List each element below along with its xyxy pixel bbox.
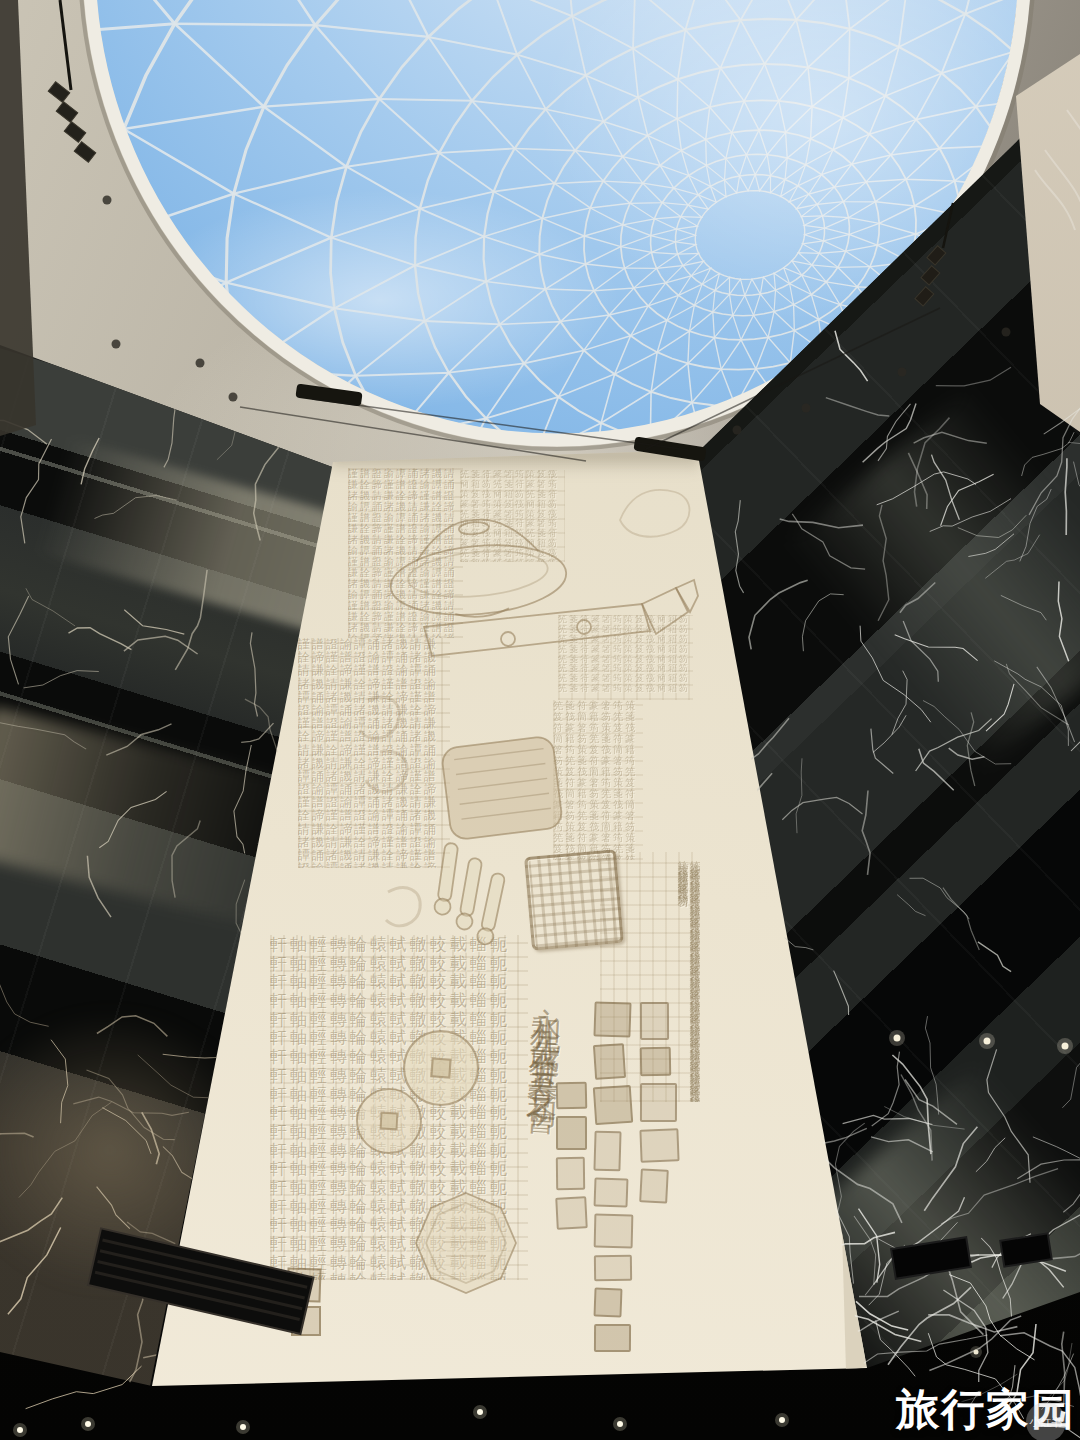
void-spotlights [13,1346,982,1437]
vent-grille [88,1228,313,1334]
ceiling-downlights [103,196,1011,435]
spotlight-cluster-left [48,0,96,162]
watermark-badge: 小红书 [1026,1402,1066,1440]
left-edge-structure [0,0,36,436]
spotlight-cluster-right [915,203,953,306]
atrium-photo: 謹譜證諭譚誦諸譏請謙詮諦謹譜證諭譚誦諸譏請謙詮諦謹譜證諭譚誦諸譏請謙詮諦謹譜證諭… [0,0,1080,1440]
recess-spotlights [889,1030,1073,1054]
fixtures-overlay [0,0,1080,1440]
marble-veins-right [706,331,1080,1440]
rim-track-lights [295,383,706,461]
cream-wall-relief-swirl [1035,110,1080,230]
